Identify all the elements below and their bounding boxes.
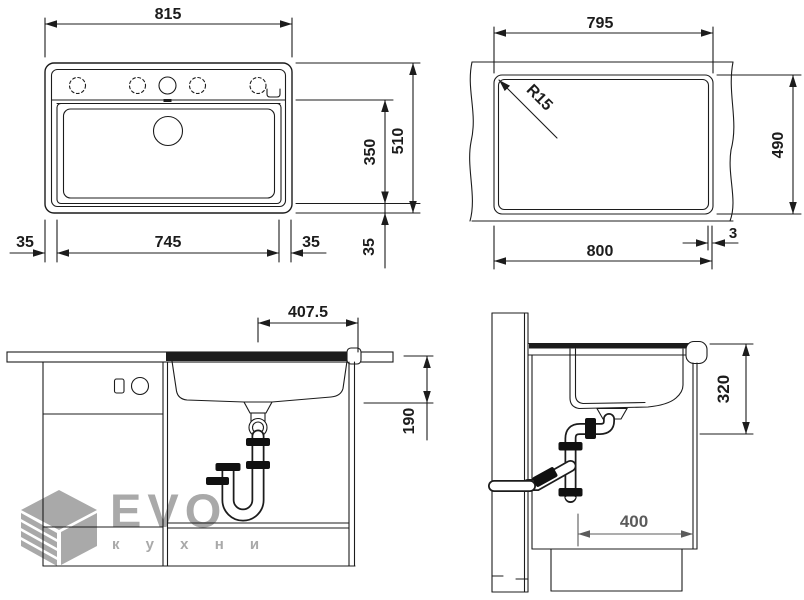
appliance-button — [115, 379, 125, 393]
dim-label-35-bottom: 35 — [361, 238, 378, 256]
counter-break-line-right — [730, 62, 734, 221]
dim-label-490: 490 — [770, 132, 787, 159]
pipe-nut — [559, 442, 583, 451]
sink-rim-inner-edge — [52, 70, 286, 207]
cutout-view: R15 795 490 800 3 — [470, 15, 801, 269]
dim-bottom-margin: 35 — [361, 213, 385, 256]
dim-label-795: 795 — [587, 15, 614, 32]
dim-label-510: 510 — [390, 128, 407, 155]
technical-drawing-canvas: EVO к у х н и — [0, 0, 804, 600]
pipe-nut — [559, 488, 583, 497]
sink-drawing: 815 510 350 35 — [0, 0, 804, 600]
dim-label-745: 745 — [155, 234, 182, 251]
dim-drain-depth: 190 — [364, 356, 433, 440]
bowl-inner-outline — [64, 109, 275, 198]
side-section-view: 320 400 — [492, 313, 753, 592]
sink-outer-edge — [45, 63, 292, 213]
dim-cutout-width-bottom: 800 3 — [494, 225, 738, 269]
tap-holes — [70, 78, 267, 94]
dim-corner-radius: R15 — [499, 80, 557, 138]
pipe-nut — [206, 477, 229, 485]
trap-pipe-inner — [228, 436, 258, 515]
dim-overall-width: 815 — [45, 6, 292, 57]
tap-hole-optional — [190, 78, 206, 94]
wall-panel — [492, 313, 528, 592]
dim-label-400: 400 — [620, 512, 648, 531]
tap-hole-optional — [70, 78, 86, 94]
dim-label-35-right: 35 — [302, 234, 320, 251]
dim-overall-depth: 510 — [296, 63, 420, 213]
dim-label-815: 815 — [155, 6, 182, 23]
sink-rim-band — [166, 353, 348, 362]
pipe-nut — [246, 438, 270, 446]
sink-rim-band-side — [529, 343, 689, 349]
dim-label-350: 350 — [362, 139, 379, 166]
bowl-section-side — [570, 349, 683, 409]
overflow-mark — [267, 89, 280, 97]
dim-rear-clearance: 400 — [578, 512, 693, 546]
drain-hole — [154, 117, 183, 146]
sink-rim-front-cap — [686, 342, 707, 364]
pipe-nut — [246, 461, 270, 469]
front-section-view: 407.5 190 — [7, 304, 433, 566]
dim-cutout-width-top: 795 — [494, 15, 713, 73]
dim-label-407-5: 407.5 — [288, 304, 328, 321]
dim-label-800: 800 — [587, 243, 614, 260]
dim-label-3: 3 — [729, 225, 737, 242]
dim-label-320: 320 — [714, 375, 733, 403]
drain-flange — [244, 402, 272, 413]
pipe-nut — [216, 463, 241, 471]
bowl-section — [172, 361, 347, 402]
top-view: 815 510 350 35 — [10, 6, 420, 268]
dim-cutout-depth: 490 — [717, 75, 801, 214]
dim-label-35-left: 35 — [16, 234, 34, 251]
drain-trap-side — [494, 409, 627, 502]
pipe-nut — [585, 418, 596, 439]
dim-label-190: 190 — [401, 408, 418, 435]
tap-hole-optional — [130, 78, 146, 94]
drain-trap-front — [206, 402, 272, 515]
dim-bowl-width-row: 35 745 35 — [10, 220, 326, 262]
tap-hole-main — [159, 77, 176, 94]
dim-installation-depth: 320 — [700, 344, 753, 434]
cabinets-front — [43, 362, 355, 566]
dim-drain-offset: 407.5 — [258, 304, 358, 352]
counter-break-line-left — [470, 62, 474, 221]
bowl-outline — [57, 104, 281, 204]
pipe-open-end — [565, 497, 576, 502]
tap-hole-optional — [250, 78, 266, 94]
appliance-knob — [132, 378, 149, 395]
center-mark — [164, 99, 172, 102]
bowl-section-side-inner — [576, 349, 646, 404]
